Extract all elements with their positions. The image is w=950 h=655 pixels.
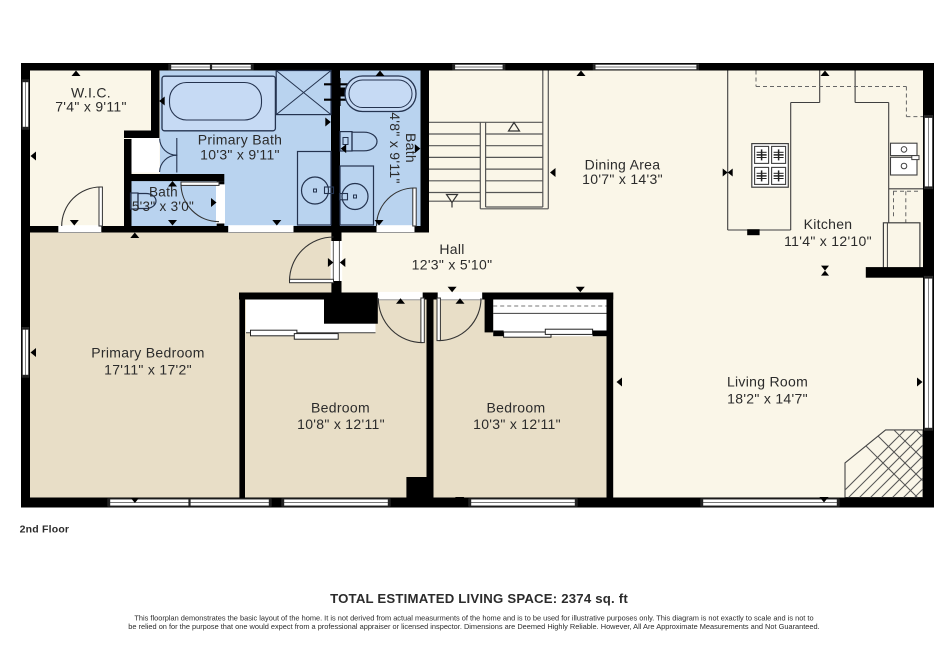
svg-text:10'7" x 14'3": 10'7" x 14'3"	[582, 171, 663, 187]
svg-text:4'8" x 9'11": 4'8" x 9'11"	[387, 112, 403, 184]
svg-text:5'3" x 3'0": 5'3" x 3'0"	[132, 199, 194, 214]
svg-text:Bath: Bath	[149, 185, 178, 200]
svg-text:TOTAL ESTIMATED LIVING SPACE:: TOTAL ESTIMATED LIVING SPACE: 2374 sq. f…	[330, 591, 628, 606]
svg-text:Primary Bedroom: Primary Bedroom	[91, 345, 204, 361]
svg-text:2nd Floor: 2nd Floor	[20, 524, 70, 536]
svg-text:10'3" x 12'11": 10'3" x 12'11"	[473, 416, 561, 432]
svg-text:Bedroom: Bedroom	[311, 400, 370, 416]
svg-text:Bath: Bath	[403, 133, 419, 163]
svg-text:Hall: Hall	[439, 241, 464, 257]
svg-text:Kitchen: Kitchen	[804, 216, 853, 232]
svg-text:12'3" x 5'10": 12'3" x 5'10"	[412, 257, 493, 273]
svg-text:Living Room: Living Room	[727, 374, 808, 390]
svg-text:Bedroom: Bedroom	[487, 400, 546, 416]
svg-text:17'11" x 17'2": 17'11" x 17'2"	[104, 362, 192, 378]
svg-text:10'8" x 12'11": 10'8" x 12'11"	[297, 416, 385, 432]
svg-text:be relied on for the purpose t: be relied on for the purpose that one wo…	[128, 622, 819, 631]
svg-text:7'4" x 9'11": 7'4" x 9'11"	[55, 99, 127, 115]
svg-text:Primary Bath: Primary Bath	[198, 132, 283, 148]
svg-text:18'2" x 14'7": 18'2" x 14'7"	[727, 391, 808, 407]
svg-text:11'4" x 12'10": 11'4" x 12'10"	[784, 233, 872, 249]
svg-text:10'3" x 9'11": 10'3" x 9'11"	[200, 147, 280, 163]
